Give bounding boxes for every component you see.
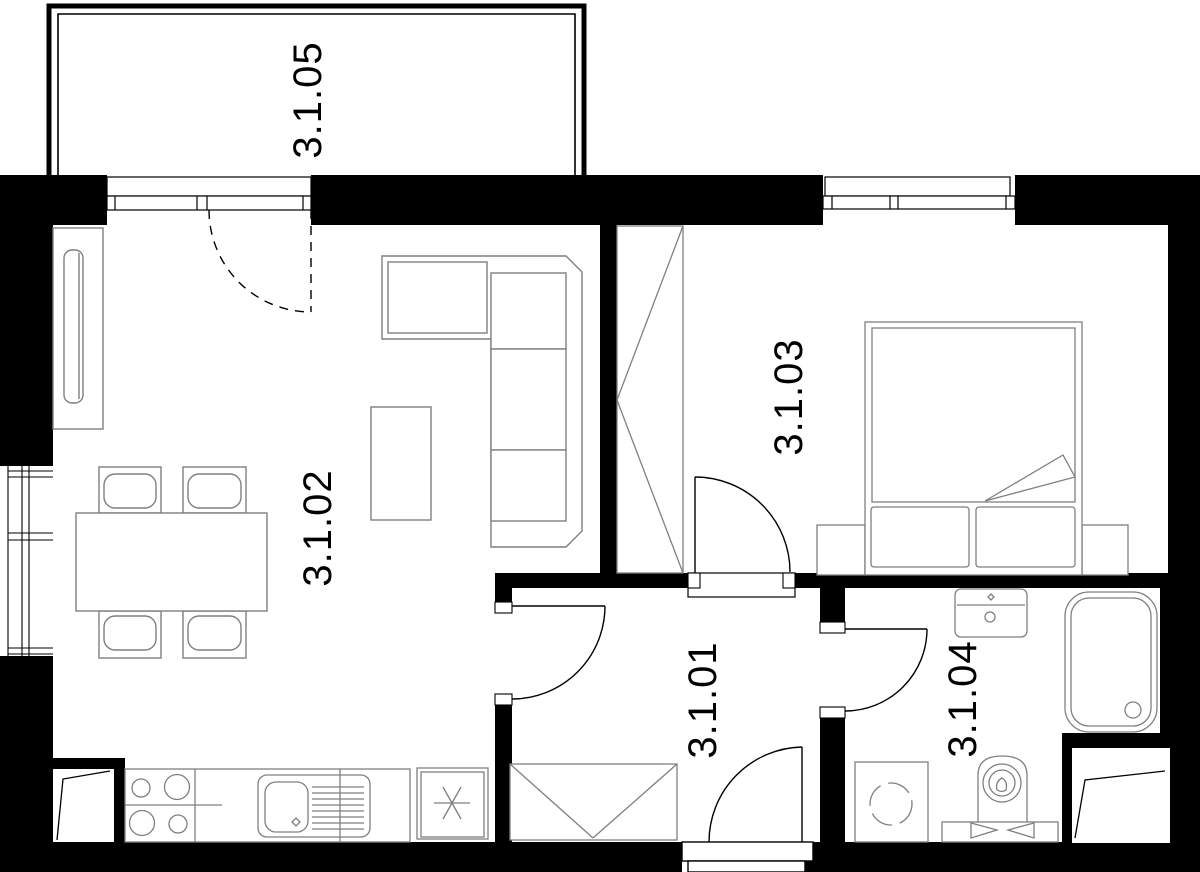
room-label-3103: 3.1.03 (767, 338, 811, 455)
room-label-3104: 3.1.04 (941, 640, 985, 757)
washing-machine (855, 762, 928, 842)
kitchen-counter (125, 769, 410, 842)
room-label-3101: 3.1.01 (681, 641, 725, 758)
shaft-bottom-right (1072, 748, 1170, 843)
coffee-table (371, 407, 431, 520)
room-label-3105: 3.1.05 (286, 41, 330, 158)
fridge (417, 768, 488, 839)
vanity-sink (955, 589, 1027, 637)
hallway-closet (510, 764, 677, 840)
living-room-window (0, 466, 53, 656)
floor-plan: 3.1.01 3.1.02 3.1.03 3.1.04 3.1.05 (0, 0, 1200, 872)
tv-cabinet (53, 228, 103, 429)
floor-plan-canvas: 3.1.01 3.1.02 3.1.03 3.1.04 3.1.05 (0, 0, 1200, 872)
shaft-bottom-left (53, 769, 114, 842)
bedroom-window (823, 175, 1015, 225)
bedroom-wardrobe (617, 226, 683, 573)
bathtub (1065, 592, 1157, 732)
room-label-3102: 3.1.02 (296, 469, 340, 586)
